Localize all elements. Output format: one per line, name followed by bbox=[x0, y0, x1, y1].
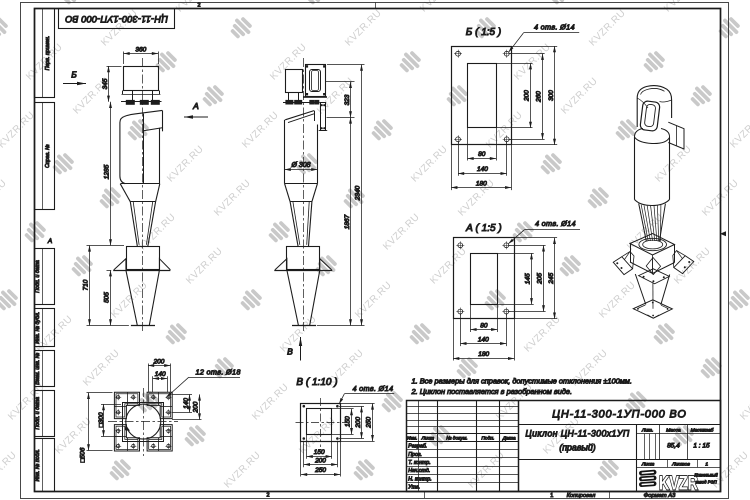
svg-text:180: 180 bbox=[478, 351, 489, 358]
svg-text:Ø 308: Ø 308 bbox=[290, 162, 310, 169]
svg-text:150: 150 bbox=[345, 416, 352, 427]
svg-text:Нач.отд.: Нач.отд. bbox=[408, 468, 430, 474]
svg-text:360: 360 bbox=[135, 47, 146, 54]
svg-text:1 : 15: 1 : 15 bbox=[693, 443, 710, 450]
svg-text:Циклон ЦН-11-300х1УП: Циклон ЦН-11-300х1УП bbox=[525, 429, 630, 439]
svg-text:Подп. и дата: Подп. и дата bbox=[35, 260, 41, 293]
svg-text:200: 200 bbox=[193, 401, 200, 413]
svg-text:1. Все размеры для справок, до: 1. Все размеры для справок, допустимые о… bbox=[412, 377, 632, 386]
svg-text:200: 200 bbox=[152, 358, 164, 365]
svg-text:140: 140 bbox=[477, 166, 488, 173]
svg-text:Б: Б bbox=[71, 70, 77, 80]
svg-text:710: 710 bbox=[83, 279, 90, 290]
svg-text:Дата: Дата bbox=[502, 435, 516, 441]
svg-text:4 отв. Ø14: 4 отв. Ø14 bbox=[353, 384, 394, 393]
svg-text:1: 1 bbox=[705, 461, 708, 467]
svg-text:Б ( 1:5 ): Б ( 1:5 ) bbox=[466, 27, 501, 38]
svg-text:Взам. инв. №: Взам. инв. № bbox=[35, 352, 41, 384]
svg-text:Листов: Листов bbox=[671, 461, 690, 467]
svg-text:Утв.: Утв. bbox=[408, 485, 420, 491]
svg-text:Пров.: Пров. bbox=[408, 452, 422, 458]
svg-text:205: 205 bbox=[537, 273, 544, 285]
svg-text:4 отв. Ø14: 4 отв. Ø14 bbox=[535, 219, 576, 228]
svg-text:150: 150 bbox=[314, 449, 325, 456]
svg-text:Котельный: Котельный bbox=[694, 473, 718, 478]
svg-text:В: В bbox=[287, 347, 293, 357]
svg-text:260: 260 bbox=[536, 91, 543, 103]
svg-text:2: 2 bbox=[266, 493, 269, 499]
svg-text:Инв. № дубл.: Инв. № дубл. bbox=[35, 312, 41, 344]
svg-text:□300: □300 bbox=[98, 412, 105, 427]
svg-text:145: 145 bbox=[525, 273, 532, 284]
svg-text:85,4: 85,4 bbox=[667, 443, 680, 450]
svg-text:№ докум.: № докум. bbox=[446, 435, 468, 441]
svg-text:323: 323 bbox=[344, 94, 351, 105]
svg-text:Лист: Лист bbox=[421, 435, 435, 441]
svg-text:Н. контр.: Н. контр. bbox=[408, 476, 431, 482]
svg-text:250: 250 bbox=[314, 467, 326, 474]
svg-text:А: А bbox=[192, 101, 199, 111]
svg-text:505: 505 bbox=[103, 292, 110, 303]
svg-text:Масштаб: Масштаб bbox=[691, 427, 714, 433]
svg-text:□506: □506 bbox=[80, 447, 87, 462]
svg-text:200: 200 bbox=[355, 416, 362, 428]
svg-text:250: 250 bbox=[366, 416, 373, 428]
svg-text:Копировал: Копировал bbox=[567, 493, 597, 499]
svg-text:Масса: Масса bbox=[666, 427, 681, 433]
svg-text:ЦН-11-300-1УП-000 ВО: ЦН-11-300-1УП-000 ВО bbox=[65, 14, 168, 24]
svg-text:завод РЭП: завод РЭП bbox=[694, 480, 717, 485]
svg-text:Разраб.: Разраб. bbox=[408, 444, 427, 450]
svg-text:Подп. и дата: Подп. и дата bbox=[35, 397, 41, 430]
svg-text:А: А bbox=[47, 238, 52, 245]
svg-text:300: 300 bbox=[548, 90, 555, 101]
svg-text:Лит.: Лит. bbox=[641, 427, 653, 433]
svg-text:140: 140 bbox=[155, 371, 166, 378]
svg-text:Инв. № подл.: Инв. № подл. bbox=[35, 449, 41, 481]
svg-text:180: 180 bbox=[476, 181, 487, 188]
svg-text:Лист: Лист bbox=[641, 461, 655, 467]
svg-text:200: 200 bbox=[524, 90, 531, 102]
svg-text:2: 2 bbox=[197, 3, 200, 9]
svg-text:80: 80 bbox=[480, 322, 488, 329]
svg-text:Изм.: Изм. bbox=[407, 435, 417, 441]
svg-text:Т. контр.: Т. контр. bbox=[408, 460, 430, 466]
svg-text:ЦН-11-300-1УП-000 ВО: ЦН-11-300-1УП-000 ВО bbox=[552, 409, 687, 421]
svg-text:2. Циклон поставляется в разоб: 2. Циклон поставляется в разобранном вид… bbox=[411, 387, 573, 396]
svg-text:1285: 1285 bbox=[104, 164, 111, 179]
svg-text:140: 140 bbox=[183, 398, 190, 409]
svg-text:2340: 2340 bbox=[355, 185, 362, 201]
svg-text:А ( 1:5 ): А ( 1:5 ) bbox=[465, 223, 502, 234]
svg-text:245: 245 bbox=[548, 272, 555, 284]
svg-text:140: 140 bbox=[478, 337, 489, 344]
svg-text:(правый): (правый) bbox=[559, 443, 596, 453]
svg-text:345: 345 bbox=[102, 78, 109, 89]
svg-text:12 отв. Ø18: 12 отв. Ø18 bbox=[196, 368, 242, 377]
svg-text:Перв. примен.: Перв. примен. bbox=[45, 36, 51, 70]
svg-text:4 отв. Ø14: 4 отв. Ø14 bbox=[534, 23, 575, 32]
svg-text:KVZR: KVZR bbox=[659, 473, 698, 495]
svg-text:1: 1 bbox=[550, 493, 553, 499]
svg-text:В ( 1:10 ): В ( 1:10 ) bbox=[296, 377, 337, 388]
svg-text:Справ. №: Справ. № bbox=[45, 144, 51, 168]
svg-text:Подп.: Подп. bbox=[481, 435, 494, 441]
svg-text:80: 80 bbox=[478, 151, 486, 158]
svg-text:1867: 1867 bbox=[344, 214, 351, 229]
svg-text:200: 200 bbox=[314, 458, 326, 465]
